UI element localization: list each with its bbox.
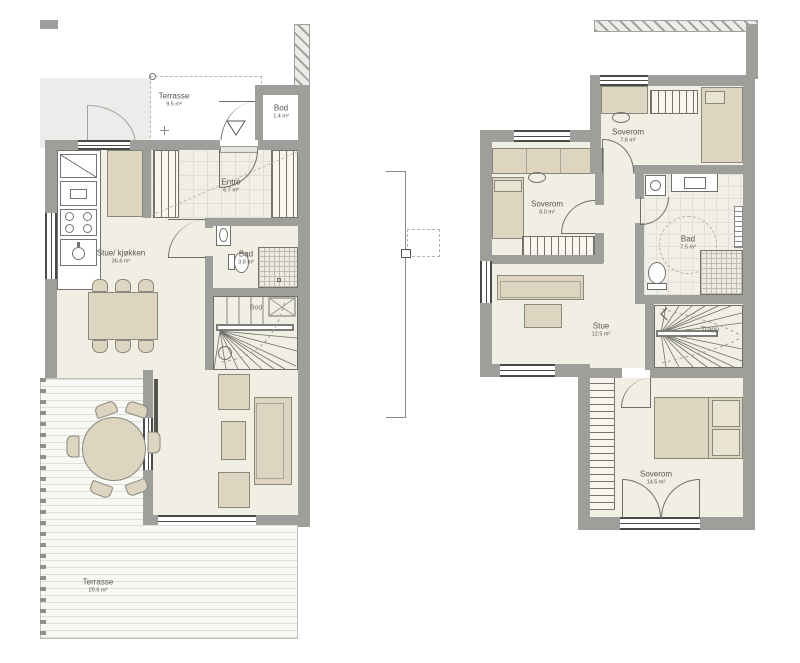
terrace-edge-posts xyxy=(40,378,46,639)
section-cut-line xyxy=(405,172,406,418)
radiator xyxy=(734,206,743,248)
party-wall-hatch xyxy=(594,20,758,32)
interior-wall xyxy=(578,368,622,378)
shower-tiles xyxy=(700,250,743,295)
exterior-wall-right xyxy=(298,85,310,525)
oven-icon xyxy=(60,181,97,206)
interior-wall xyxy=(635,295,743,304)
round-table xyxy=(82,417,146,481)
dining-chair xyxy=(92,279,108,292)
room-label-stue-kjokken: Stue/ kjøkken 36.6 m² xyxy=(97,249,145,266)
sink-basin xyxy=(684,177,706,189)
coffee-table xyxy=(524,304,562,328)
exterior-wall xyxy=(578,368,590,530)
bath-wall-corner xyxy=(205,218,213,228)
room-label-bad-ground: Bad 3.8 m² xyxy=(238,250,254,267)
closet-rail xyxy=(590,378,615,510)
closet-rail xyxy=(650,90,698,114)
dishwasher-icon xyxy=(60,154,97,178)
room-label-trapp: Trapp xyxy=(701,327,719,336)
window xyxy=(78,140,130,150)
tall-cabinet xyxy=(107,150,143,217)
room-label-soverom-left: Soverom 8.0 m² xyxy=(531,200,563,217)
bath-stair-wall xyxy=(205,256,213,370)
room-label-soverom-main: Soverom 14.5 m² xyxy=(640,470,672,487)
room-label-bad-upper: Bad 7.5 m² xyxy=(680,235,696,252)
dining-chair xyxy=(138,279,154,292)
coffee-table xyxy=(221,421,246,460)
bath-wall-top xyxy=(208,218,310,226)
exterior-wall-left xyxy=(480,130,492,376)
room-label-soverom-top: Soverom 7.6 m² xyxy=(612,128,644,145)
terrace-chair xyxy=(148,432,161,454)
window xyxy=(500,364,555,377)
dining-chair xyxy=(138,340,154,353)
room-label-terrasse-top: Terrasse 9.5 m² xyxy=(159,92,190,109)
window xyxy=(45,213,57,279)
balcony-door-window xyxy=(620,517,700,530)
washing-machine-icon xyxy=(645,175,666,196)
pillow xyxy=(705,91,725,104)
interior-wall xyxy=(635,173,644,199)
chair-icon xyxy=(612,112,630,123)
pillow xyxy=(712,400,740,427)
room-label-entre: Entré 6.7 m² xyxy=(221,178,240,195)
stove-icon xyxy=(60,209,97,236)
party-wall-hatch xyxy=(294,24,310,92)
neighbor-wall-stub xyxy=(40,20,58,29)
section-cut-tick xyxy=(386,171,406,172)
floorplan-canvas: Terrasse 9.5 m² Bod 1.4 m² Entré 6.7 m² … xyxy=(0,0,800,663)
room-label-bod-stairs: Bod xyxy=(250,305,262,314)
pillow xyxy=(494,180,522,192)
section-ref-box xyxy=(407,229,440,257)
interior-wall xyxy=(633,165,743,174)
terrace-deck xyxy=(40,525,298,639)
window xyxy=(480,261,492,303)
bathroom-sink xyxy=(216,224,231,246)
sink-icon xyxy=(60,239,97,266)
room-label-terrasse-main: Terrasse 29.6 m² xyxy=(83,578,114,595)
exterior-wall-right xyxy=(743,75,755,530)
dining-chair xyxy=(115,279,131,292)
chair-icon xyxy=(528,172,546,183)
dining-chair xyxy=(115,340,131,353)
entre-partition-wall xyxy=(143,150,151,218)
section-cut-tick xyxy=(386,417,406,418)
interior-wall xyxy=(480,255,603,264)
sofa-seat xyxy=(256,403,284,479)
dining-table xyxy=(88,292,158,340)
terrace-post-marker xyxy=(149,73,156,80)
armchair xyxy=(218,374,250,410)
staircase-upper xyxy=(654,305,743,368)
room-label-stue-upper: Stue 12.5 m² xyxy=(592,322,611,339)
interior-wall xyxy=(645,304,654,370)
tv xyxy=(154,379,158,437)
toilet-bowl xyxy=(648,262,666,284)
section-ref-square xyxy=(401,249,411,258)
shower-drain xyxy=(277,278,281,282)
room-label-bod-top: Bod 1.4 m² xyxy=(273,104,289,121)
bod-left-wall xyxy=(255,85,263,148)
terrace-chair xyxy=(67,436,80,458)
terrace-cross-marker xyxy=(160,126,169,135)
closet-rail xyxy=(522,236,595,256)
party-wall xyxy=(746,24,758,79)
wardrobe-unit xyxy=(601,86,648,114)
shower-tiles xyxy=(258,247,298,288)
toilet-tank xyxy=(647,283,667,290)
pillow xyxy=(712,429,740,456)
entrance-marker-triangle xyxy=(226,120,246,136)
sofa-seat xyxy=(500,281,581,298)
vanity-counter xyxy=(671,173,718,192)
interior-wall xyxy=(635,223,644,303)
window xyxy=(600,75,648,86)
stair-wall-top xyxy=(208,288,310,296)
wardrobe-unit xyxy=(492,148,595,174)
oven-door xyxy=(70,189,87,199)
dining-chair xyxy=(92,340,108,353)
interior-wall xyxy=(650,368,755,378)
armchair xyxy=(218,472,250,508)
window xyxy=(514,130,570,142)
